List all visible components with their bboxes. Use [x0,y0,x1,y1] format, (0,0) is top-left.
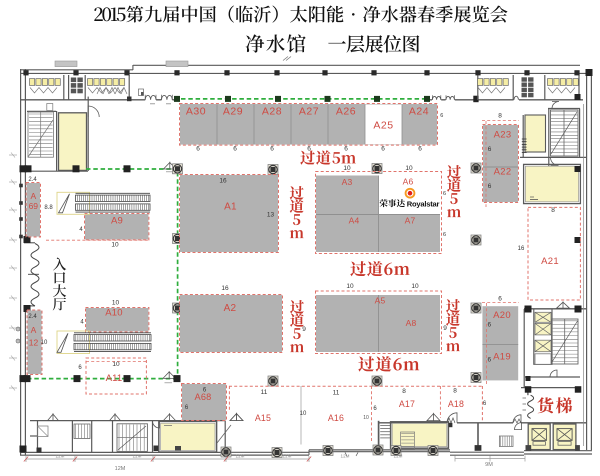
svg-text:6: 6 [270,146,274,153]
svg-text:69: 69 [29,201,39,211]
svg-text:6: 6 [418,146,422,153]
svg-text:6: 6 [381,146,385,153]
svg-text:12: 12 [29,338,39,348]
svg-text:A68: A68 [195,392,212,402]
svg-text:12M: 12M [133,454,142,459]
svg-text:A6: A6 [403,177,414,187]
svg-text:9: 9 [302,326,306,333]
svg-text:A15: A15 [255,413,271,423]
svg-text:A19: A19 [493,352,511,363]
svg-text:10: 10 [405,165,413,172]
svg-text:A3: A3 [342,177,353,187]
svg-text:12M: 12M [56,454,65,459]
svg-text:13: 13 [267,212,275,219]
svg-text:12M: 12M [341,454,350,459]
svg-text:6: 6 [498,296,502,303]
svg-text:A10: A10 [105,308,123,319]
svg-text:10: 10 [41,340,48,346]
svg-text:A8: A8 [406,318,417,328]
svg-text:10: 10 [300,411,307,417]
svg-text:12M: 12M [394,454,403,459]
svg-text:6: 6 [443,191,446,197]
svg-text:A22: A22 [494,167,512,178]
svg-text:16: 16 [221,285,229,292]
svg-text:A5: A5 [375,296,386,306]
svg-text:A27: A27 [299,106,319,118]
svg-text:12M: 12M [236,454,245,459]
svg-text:A26: A26 [336,106,356,118]
svg-text:16: 16 [518,246,525,252]
svg-text:6: 6 [488,183,492,190]
svg-text:11: 11 [333,390,340,397]
svg-text:11: 11 [261,389,268,396]
svg-text:A21: A21 [541,256,559,267]
svg-text:9M: 9M [485,462,493,468]
svg-text:6: 6 [488,146,492,153]
svg-text:6: 6 [487,357,491,364]
svg-text:A23: A23 [494,130,512,141]
svg-text:6: 6 [233,146,237,153]
svg-text:10: 10 [346,283,354,290]
svg-text:A2: A2 [224,303,237,314]
svg-text:A20: A20 [493,310,511,321]
svg-text:8: 8 [402,388,406,395]
svg-text:A: A [30,191,36,201]
svg-text:16: 16 [219,178,227,185]
svg-text:10: 10 [111,242,119,249]
svg-text:A: A [31,325,37,335]
svg-text:6: 6 [440,113,443,119]
svg-text:A18: A18 [448,399,464,409]
svg-text:A16: A16 [328,413,344,423]
svg-text:A1: A1 [224,202,237,213]
svg-text:Royalstar: Royalstar [407,199,440,208]
svg-text:8: 8 [498,113,502,120]
svg-text:A11: A11 [106,373,123,384]
svg-text:6: 6 [487,322,491,329]
svg-text:A17: A17 [399,399,415,409]
svg-text:6: 6 [344,146,348,153]
svg-text:A29: A29 [223,106,243,118]
svg-text:10: 10 [112,361,120,368]
svg-text:A25: A25 [373,120,393,132]
svg-text:9: 9 [443,325,447,332]
svg-text:A7: A7 [405,216,416,226]
svg-text:8.8: 8.8 [44,205,53,211]
svg-text:8: 8 [453,388,457,395]
svg-text:A24: A24 [409,106,429,118]
svg-text:A4: A4 [349,216,360,226]
svg-text:10: 10 [343,165,351,172]
svg-text:A28: A28 [262,106,282,118]
svg-text:A30: A30 [186,106,206,118]
svg-text:6: 6 [443,232,446,238]
svg-text:A9: A9 [111,216,123,227]
svg-text:12M: 12M [283,454,292,459]
svg-text:6: 6 [196,146,200,153]
svg-text:2.4: 2.4 [28,177,37,183]
svg-text:10: 10 [363,415,369,421]
svg-text:12M: 12M [115,466,126,472]
svg-text:8: 8 [551,207,555,214]
svg-text:10: 10 [411,283,419,290]
svg-text:10: 10 [112,300,120,307]
svg-text:2.4: 2.4 [28,314,37,320]
